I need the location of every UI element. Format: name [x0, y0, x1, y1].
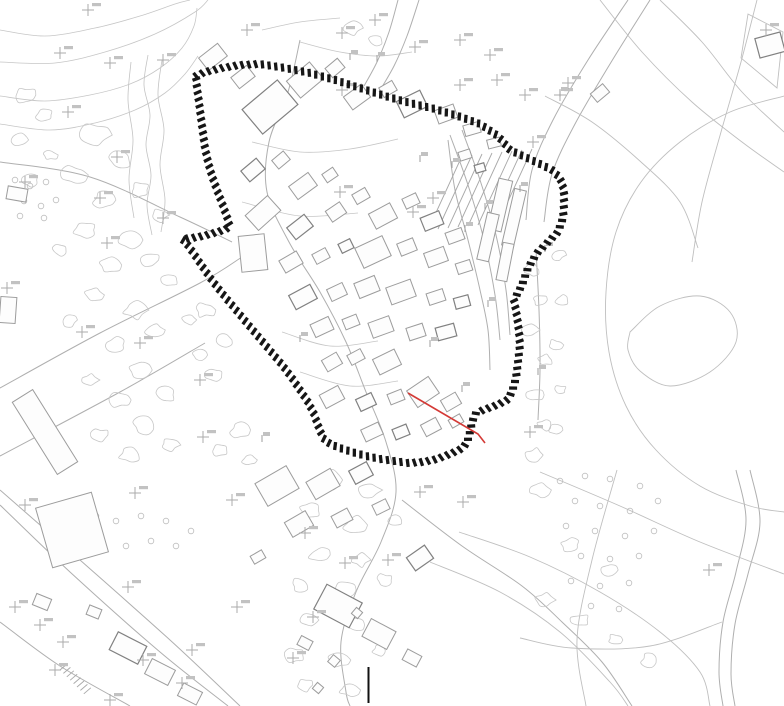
building: [355, 236, 391, 269]
hatch-tick: [84, 688, 91, 694]
boundary-dash: [192, 234, 195, 241]
flag-label-smudge: [351, 50, 358, 54]
elevation-label-smudge: [207, 430, 216, 433]
building: [86, 605, 102, 619]
field-line: [520, 622, 722, 649]
boundary-dash: [327, 440, 330, 447]
boundary-dash: [558, 178, 565, 182]
tree-dot: [27, 183, 33, 189]
flag-label-smudge: [539, 365, 546, 369]
elevation-label-smudge: [29, 498, 38, 501]
building: [322, 167, 338, 183]
boundary-dash: [530, 257, 538, 259]
boundary-dash: [461, 443, 468, 447]
hatch-tick: [70, 674, 77, 680]
building: [321, 352, 342, 372]
vegetation-blob: [182, 315, 197, 325]
vegetation-blob: [529, 483, 551, 498]
tree-dot: [188, 528, 194, 534]
building: [407, 376, 440, 407]
boundary-dash: [282, 64, 283, 72]
boundary-dash: [185, 242, 190, 248]
boundary-dash: [544, 241, 551, 245]
road-line: [0, 162, 232, 242]
boundary-dash: [189, 248, 194, 254]
tree-dot: [651, 528, 657, 534]
boundary-dash: [533, 157, 534, 165]
building: [368, 316, 394, 339]
elevation-label-smudge: [537, 135, 546, 138]
boundary-dash: [198, 118, 205, 121]
vegetation-blob: [109, 392, 131, 407]
tree-dot: [578, 553, 584, 559]
tree-dot: [173, 543, 179, 549]
elevation-label-smudge: [297, 651, 306, 654]
boundary-dash: [265, 344, 270, 351]
boundary-dash: [254, 60, 256, 68]
boundary-dash: [459, 113, 460, 121]
boundary-dash: [413, 459, 416, 467]
vegetation-blob: [90, 429, 108, 442]
elevation-label-smudge: [464, 33, 473, 36]
boundary-dash: [298, 387, 303, 393]
boundary-dash: [483, 123, 486, 131]
elevation-label-smudge: [344, 185, 353, 188]
building: [387, 389, 405, 405]
field-line: [459, 532, 710, 706]
boundary-dash: [301, 393, 306, 399]
building: [314, 584, 362, 628]
boundary-dash: [203, 151, 210, 155]
boundary-dash: [213, 66, 217, 73]
boundary-dash: [313, 418, 320, 423]
flag-label-smudge: [489, 297, 496, 301]
boundary-dash: [407, 459, 408, 467]
elevation-label-smudge: [147, 653, 156, 656]
tree-dot: [572, 498, 578, 504]
flag-label-smudge: [263, 432, 270, 436]
boundary-dash: [199, 131, 206, 134]
vegetation-blob: [308, 548, 330, 561]
field-line: [545, 96, 698, 248]
boundary-dash: [186, 235, 189, 243]
vegetation-blob: [80, 124, 113, 146]
vegetation-blob: [298, 679, 313, 692]
boundary-dash: [545, 163, 547, 171]
boundary-dash: [220, 65, 224, 72]
boundary-dash: [193, 78, 201, 81]
elevation-label-smudge: [196, 643, 205, 646]
flag-label-smudge: [486, 200, 493, 204]
boundary-dash: [457, 446, 462, 452]
elevation-label-smudge: [144, 336, 153, 339]
boundary-dash: [210, 177, 217, 182]
boundary-dash: [554, 231, 561, 235]
tree-dot: [597, 583, 603, 589]
building: [36, 492, 109, 568]
boundary-dash: [467, 426, 475, 427]
vegetation-blob: [161, 275, 177, 285]
contour-line: [282, 332, 378, 346]
field-line: [660, 0, 784, 132]
boundary-dash: [527, 154, 528, 162]
boundary-dash: [478, 120, 479, 128]
boundary-dash: [394, 457, 395, 465]
building: [420, 417, 441, 436]
boundary-dash: [226, 222, 233, 226]
tree-dot: [563, 523, 569, 529]
boundary-dash: [486, 405, 491, 412]
building: [392, 424, 410, 440]
vegetation-blob: [73, 223, 95, 238]
boundary-dash: [311, 411, 317, 416]
building: [455, 259, 473, 274]
boundary-dash: [206, 164, 213, 168]
road-line: [526, 0, 628, 220]
hatch-tick: [74, 678, 81, 684]
boundary-dash: [513, 368, 521, 369]
boundary-dash: [515, 149, 516, 157]
boundary-dash: [348, 447, 349, 455]
building: [312, 682, 323, 693]
boundary-dash: [212, 183, 219, 188]
boundary-dash: [205, 231, 209, 238]
boundary-dash: [302, 68, 303, 76]
boundary-dash: [401, 458, 402, 466]
contour-line: [300, 372, 398, 386]
elevation-label-smudge: [111, 236, 120, 239]
building: [372, 499, 390, 515]
vegetation-blob: [52, 245, 66, 257]
tree-dot: [592, 528, 598, 534]
boundary-dash: [213, 281, 218, 287]
flag-label-smudge: [431, 337, 438, 341]
contour-line: [252, 139, 398, 152]
elevation-label-smudge: [392, 553, 401, 556]
building: [312, 248, 330, 265]
boundary-dash: [198, 125, 205, 128]
boundary-dash: [504, 397, 509, 403]
building: [286, 62, 323, 98]
elevation-label-smudge: [309, 526, 318, 529]
boundary-dash: [513, 312, 520, 315]
building: [145, 659, 176, 686]
boundary-dash: [516, 340, 524, 343]
building: [319, 385, 345, 408]
boundary-dash: [294, 382, 299, 388]
elevation-label-smudge: [437, 191, 446, 194]
boundary-dash: [217, 286, 222, 292]
boundary-dash: [512, 374, 520, 375]
tree-dot: [607, 476, 613, 482]
boundary-dash: [515, 354, 523, 355]
boundary-dash: [219, 203, 226, 208]
vegetation-blob: [339, 684, 360, 697]
boundary-dash: [290, 376, 295, 382]
boundary-dash: [197, 111, 204, 114]
boundary-dash: [222, 209, 229, 214]
boundary-dash: [560, 185, 567, 189]
building: [287, 214, 314, 239]
boundary-dash: [387, 456, 388, 464]
boundary-dash: [234, 62, 237, 69]
elevation-label-smudge: [132, 580, 141, 583]
building: [406, 545, 433, 571]
vegetation-blob: [84, 288, 104, 301]
building: [354, 275, 380, 298]
boundary-dash: [426, 457, 430, 464]
building: [349, 462, 374, 485]
building: [279, 251, 303, 273]
elevation-label-smudge: [534, 425, 543, 428]
building: [0, 296, 17, 323]
building: [420, 211, 444, 231]
boundary-dash: [221, 292, 226, 299]
boundary-dash: [275, 63, 276, 71]
field-line: [628, 296, 738, 386]
stream-line: [144, 55, 152, 235]
boundary-dash: [318, 430, 324, 435]
boundary-dash: [278, 359, 283, 366]
boundary-dash: [289, 65, 290, 73]
building: [372, 349, 401, 375]
elevation-label-smudge: [236, 493, 245, 496]
boundary-dash: [516, 347, 524, 348]
boundary-dash: [549, 236, 556, 240]
flag-label-smudge: [378, 52, 385, 56]
elevation-label-smudge: [501, 73, 510, 76]
boundary-dash: [465, 115, 466, 123]
vegetation-blob: [118, 231, 143, 249]
boundary-dash: [181, 237, 185, 244]
tree-dot: [17, 213, 23, 219]
boundary-dash: [439, 454, 444, 461]
flag-label-smudge: [466, 222, 473, 226]
building: [386, 279, 417, 305]
vegetation-blob: [555, 386, 566, 394]
building: [397, 238, 418, 256]
boundary-dash: [556, 227, 564, 228]
boundary-dash: [274, 354, 279, 361]
contour-line: [262, 18, 340, 30]
boundary-dash: [260, 339, 265, 346]
field-line: [600, 0, 784, 172]
elevation-label-smudge: [29, 175, 38, 178]
building: [272, 151, 291, 169]
boundary-dash: [241, 61, 244, 69]
boundary-dash: [200, 70, 205, 76]
hatch-tick: [80, 684, 87, 690]
tree-dot: [38, 203, 44, 209]
elevation-label-smudge: [167, 211, 176, 214]
elevation-label-smudge: [44, 618, 53, 621]
elevation-label-smudge: [379, 13, 388, 16]
boundary-dash: [480, 407, 485, 413]
vegetation-blob: [35, 109, 51, 121]
boundary-dash: [243, 318, 248, 325]
boundary-dash: [560, 206, 568, 208]
elevation-label-smudge: [241, 600, 250, 603]
boundary-dash: [247, 323, 252, 330]
flag-label-smudge: [521, 182, 528, 186]
vegetation-blob: [230, 422, 251, 438]
boundary-dash: [519, 282, 527, 283]
building: [327, 283, 348, 302]
boundary-dash: [262, 60, 263, 68]
building: [590, 84, 609, 103]
building: [474, 163, 486, 173]
boundary-dash: [200, 138, 207, 141]
vegetation-blob: [300, 614, 319, 626]
building: [109, 632, 147, 664]
elevation-label-smudge: [72, 105, 81, 108]
vegetation-blob: [533, 296, 547, 306]
vegetation-blob: [119, 447, 140, 462]
vegetation-blob: [63, 315, 77, 327]
elevation-label-smudge: [346, 26, 355, 29]
boundary-dash: [215, 190, 221, 195]
building: [241, 158, 265, 182]
elevation-label-smudge: [19, 600, 28, 603]
boundary-dash: [227, 63, 230, 70]
boundary-dash: [559, 213, 567, 215]
boundary-dash: [315, 424, 322, 429]
elevation-label-smudge: [121, 150, 130, 153]
boundary-dash: [511, 299, 518, 303]
building: [368, 203, 397, 229]
boundary-dash: [515, 333, 523, 336]
flag-label-smudge: [453, 158, 460, 162]
boundary-dash: [527, 263, 535, 265]
building: [306, 468, 340, 499]
elevation-label-smudge: [114, 693, 123, 696]
tree-dot: [568, 578, 574, 584]
building: [231, 65, 255, 88]
building: [250, 550, 266, 564]
vegetation-blob: [213, 445, 227, 456]
vegetation-blob: [561, 538, 579, 552]
boundary-dash: [514, 361, 522, 362]
flag-label-smudge: [561, 87, 568, 91]
building: [426, 289, 446, 306]
elevation-label-smudge: [494, 48, 503, 51]
vegetation-blob: [351, 553, 371, 568]
vegetation-blob: [293, 578, 308, 592]
boundary-dash: [472, 413, 480, 414]
tree-dot: [113, 518, 119, 524]
boundary-dash: [269, 349, 274, 356]
boundary-dash: [193, 253, 198, 259]
elevation-label-smudge: [572, 76, 581, 79]
building: [331, 508, 353, 528]
vegetation-blob: [162, 439, 181, 452]
boundary-dash: [252, 328, 257, 335]
elevation-label-smudge: [11, 281, 20, 284]
elevation-label-smudge: [114, 56, 123, 59]
building: [402, 649, 422, 667]
road-line: [364, 0, 398, 86]
vegetation-blob: [11, 133, 28, 146]
hatch-tick: [77, 681, 84, 687]
boundary-dash: [492, 403, 497, 410]
boundary-dash: [512, 306, 519, 309]
vegetation-blob: [555, 295, 568, 305]
building: [445, 227, 465, 244]
tree-dot: [582, 473, 588, 479]
boundary-dash: [201, 265, 206, 271]
vegetation-blob: [359, 484, 383, 498]
boundary-dash: [256, 333, 261, 340]
boundary-dash: [513, 294, 521, 296]
boundary-dash: [515, 326, 523, 329]
tree-dot: [12, 177, 18, 183]
boundary-dash: [199, 233, 202, 240]
boundary-dash: [451, 449, 456, 455]
tree-dot: [43, 179, 49, 185]
tree-dot: [148, 538, 154, 544]
tree-dot: [607, 556, 613, 562]
vegetation-blob: [60, 166, 88, 184]
boundary-dash: [204, 270, 209, 276]
boundary-dash: [309, 69, 310, 77]
vegetation-blob: [609, 634, 623, 643]
building: [289, 172, 318, 199]
boundary-dash: [560, 192, 568, 194]
vegetation-blob: [522, 324, 541, 336]
building: [245, 196, 281, 231]
elevation-label-smudge: [464, 78, 473, 81]
building: [12, 390, 77, 475]
building: [32, 593, 51, 610]
vegetation-blob: [377, 574, 392, 587]
boundary-dash: [197, 259, 202, 265]
boundary-dash: [503, 141, 508, 148]
boundary-dash: [521, 152, 522, 160]
boundary-dash: [494, 131, 497, 139]
elevation-label-smudge: [92, 3, 101, 6]
vegetation-blob: [284, 648, 303, 662]
vegetation-blob: [601, 565, 618, 576]
field-line: [692, 0, 757, 262]
building: [362, 619, 396, 650]
vegetation-blob: [106, 336, 125, 352]
tree-dot: [636, 553, 642, 559]
boundary-dash: [498, 400, 503, 406]
boundary-dash: [225, 297, 230, 304]
tree-dot: [41, 215, 47, 221]
boundary-dash: [516, 288, 524, 290]
vegetation-blob: [109, 151, 130, 168]
boundary-dash: [560, 199, 568, 201]
elevation-label-smudge: [104, 191, 113, 194]
vegetation-blob: [526, 390, 544, 400]
road-line: [719, 470, 746, 706]
elevation-label-smudge: [251, 23, 260, 26]
building: [328, 655, 341, 668]
elevation-label-smudge: [86, 325, 95, 328]
vegetation-blob: [549, 424, 563, 434]
map-canvas: [0, 0, 784, 706]
elevation-label-smudge: [417, 205, 426, 208]
boundary-dash: [208, 276, 213, 282]
vegetation-blob: [82, 374, 100, 386]
elevation-label-smudge: [64, 46, 73, 49]
boundary-dash: [555, 172, 559, 179]
flag-label-smudge: [463, 382, 470, 386]
boundary-dash: [539, 160, 541, 168]
boundary-dash: [218, 228, 222, 235]
building: [406, 323, 426, 341]
